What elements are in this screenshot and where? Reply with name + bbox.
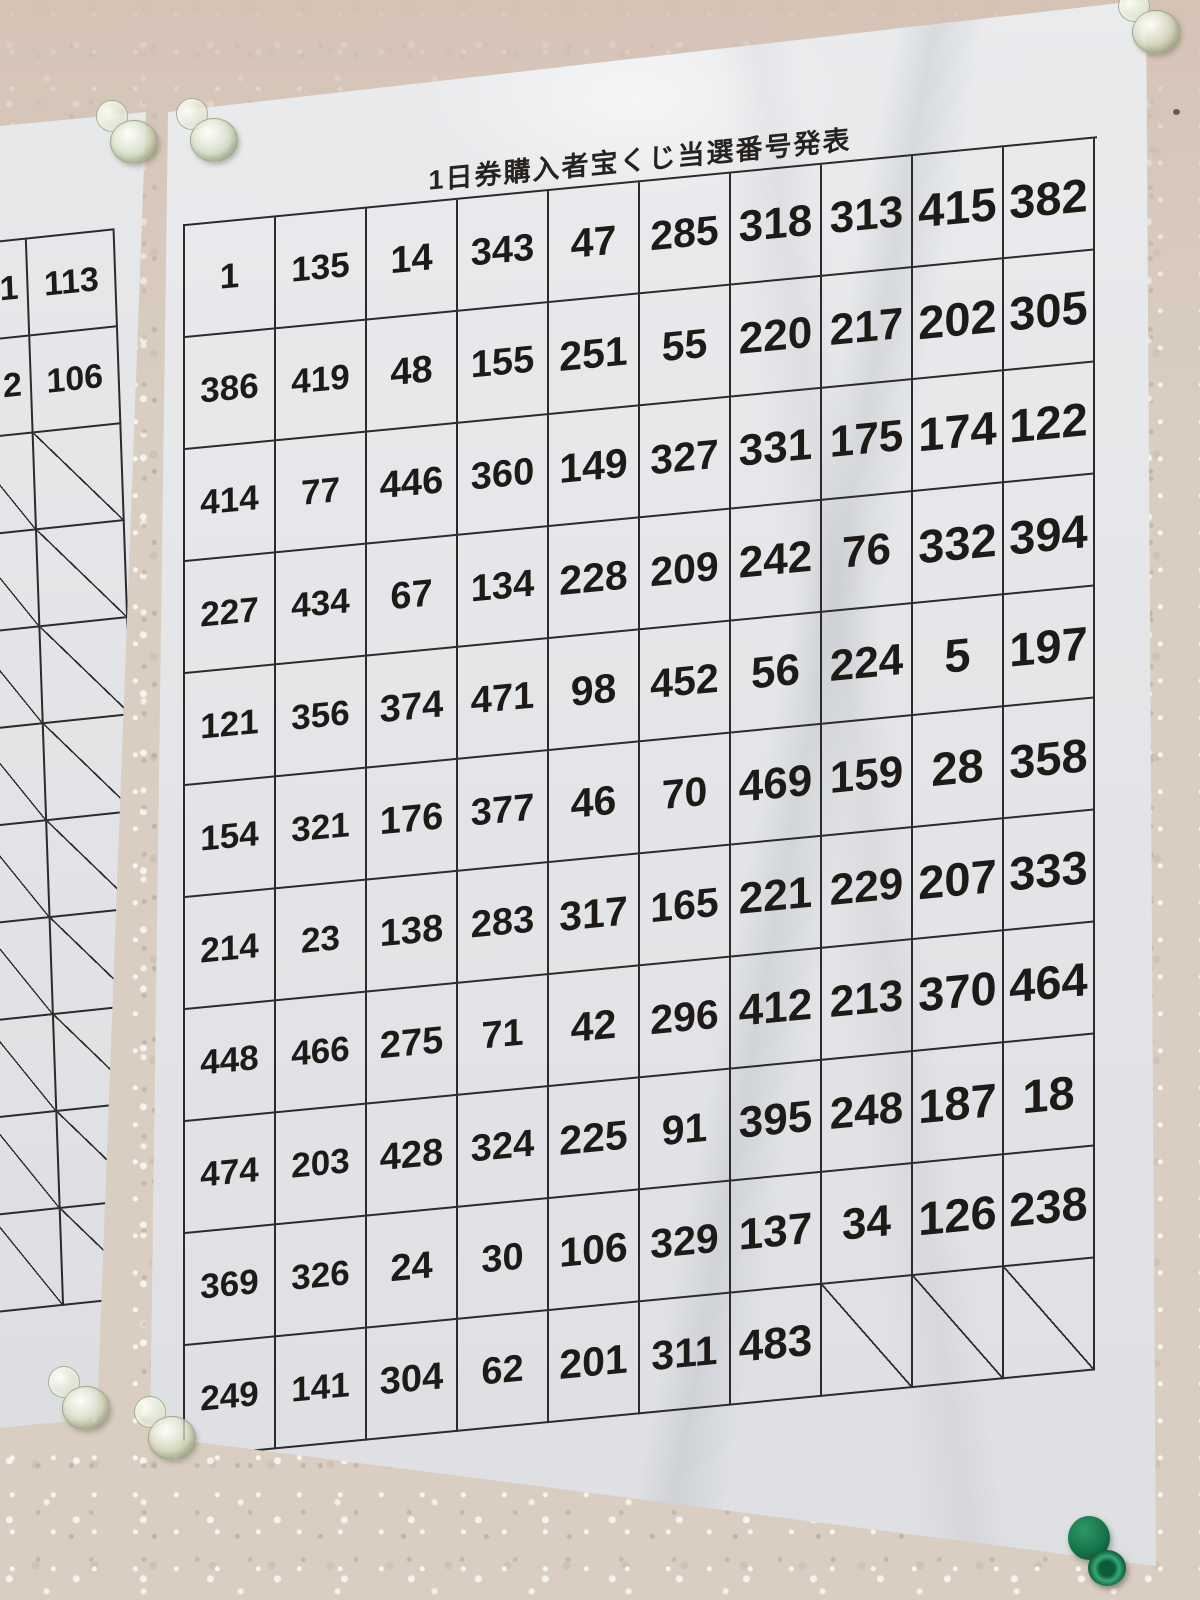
winning-number-cell: 333 xyxy=(1004,810,1095,931)
winning-number-cell: 415 xyxy=(913,147,1004,268)
crossed-out-cell xyxy=(822,1276,913,1397)
pushpin-head xyxy=(62,1386,110,1430)
winning-number-cell: 305 xyxy=(1004,250,1095,371)
winning-number-cell: 321 xyxy=(276,769,367,890)
winning-number-cell: 452 xyxy=(640,621,731,742)
lottery-number-table: 1135143434728531831341538238641948155251… xyxy=(183,136,1097,1458)
winning-number-cell: 370 xyxy=(913,931,1004,1052)
winning-number-cell: 394 xyxy=(1004,474,1095,595)
winning-number-cell: 1 xyxy=(0,239,30,343)
winning-number-cell: 98 xyxy=(549,630,640,751)
winning-number-cell: 14 xyxy=(367,200,458,321)
table-row xyxy=(0,521,128,634)
winning-number-cell: 1 xyxy=(185,217,276,338)
winning-number-cell: 202 xyxy=(913,259,1004,380)
winning-number-cell: 318 xyxy=(731,165,822,286)
winning-number-cell: 30 xyxy=(458,1199,549,1320)
winning-number-cell: 343 xyxy=(458,191,549,312)
winning-number-cell: 113 xyxy=(27,230,118,336)
winning-number-cell: 317 xyxy=(549,854,640,975)
winning-number-cell: 24 xyxy=(367,1208,458,1329)
table-row: 1113 xyxy=(0,230,118,343)
winning-number-cell: 122 xyxy=(1004,362,1095,483)
winning-number-cell: 285 xyxy=(640,173,731,294)
winning-number-cell: 228 xyxy=(549,518,640,639)
winning-number-cell: 77 xyxy=(276,433,367,554)
crossed-out-cell xyxy=(0,724,47,828)
crossed-out-cell xyxy=(1004,1258,1095,1379)
table-row xyxy=(0,424,125,537)
winning-number-cell: 474 xyxy=(185,1113,276,1234)
crossed-out-cell xyxy=(0,918,54,1022)
winning-number-cell: 220 xyxy=(731,277,822,398)
winning-number-cell: 229 xyxy=(822,828,913,949)
crossed-out-cell xyxy=(0,1112,61,1216)
table-row: 2106 xyxy=(0,327,121,440)
winning-number-cell: 377 xyxy=(458,751,549,872)
winning-number-cell: 18 xyxy=(1004,1034,1095,1155)
left-poster-content: 11132106 xyxy=(0,227,124,245)
winning-number-cell: 5 xyxy=(913,595,1004,716)
winning-number-cell: 412 xyxy=(731,949,822,1070)
winning-number-cell: 154 xyxy=(185,777,276,898)
winning-number-cell: 106 xyxy=(30,327,121,433)
crossed-out-cell xyxy=(37,521,128,627)
winning-number-cell: 369 xyxy=(185,1225,276,1346)
winning-number-cell: 466 xyxy=(276,993,367,1114)
crossed-out-cell xyxy=(0,1015,57,1119)
winning-number-cell: 62 xyxy=(458,1311,549,1432)
winning-number-cell: 331 xyxy=(731,389,822,510)
main-poster-paper: 1日券購入者宝くじ当選番号発表 113514343472853183134153… xyxy=(148,0,1162,1600)
winning-number-cell: 106 xyxy=(549,1190,640,1311)
crossed-out-cell xyxy=(913,1267,1004,1388)
crossed-out-cell xyxy=(0,627,44,731)
winning-number-cell: 175 xyxy=(822,380,913,501)
crossed-out-cell xyxy=(0,433,37,537)
winning-number-cell: 275 xyxy=(367,984,458,1105)
winning-number-cell: 313 xyxy=(822,156,913,277)
crossed-out-cell xyxy=(40,618,131,724)
winning-number-cell: 76 xyxy=(822,492,913,613)
crossed-out-cell xyxy=(0,1209,64,1313)
crossed-out-cell xyxy=(0,530,40,634)
winning-number-cell: 135 xyxy=(276,209,367,330)
winning-number-cell: 174 xyxy=(913,371,1004,492)
winning-number-cell: 2 xyxy=(0,336,34,440)
winning-number-cell: 121 xyxy=(185,665,276,786)
winning-number-cell: 324 xyxy=(458,1087,549,1208)
winning-number-cell: 207 xyxy=(913,819,1004,940)
winning-number-cell: 55 xyxy=(640,285,731,406)
crossed-out-cell xyxy=(34,424,125,530)
winning-number-cell: 209 xyxy=(640,509,731,630)
pushpin-head xyxy=(1088,1550,1126,1586)
winning-number-cell: 332 xyxy=(913,483,1004,604)
winning-number-cell: 249 xyxy=(185,1337,276,1458)
winning-number-cell: 464 xyxy=(1004,922,1095,1043)
winning-number-cell: 311 xyxy=(640,1293,731,1414)
crossed-out-cell xyxy=(0,821,51,925)
winning-number-cell: 134 xyxy=(458,527,549,648)
winning-number-cell: 227 xyxy=(185,553,276,674)
winning-number-cell: 67 xyxy=(367,536,458,657)
winning-number-cell: 304 xyxy=(367,1320,458,1441)
winning-number-cell: 165 xyxy=(640,845,731,966)
winning-number-cell: 203 xyxy=(276,1105,367,1226)
winning-number-cell: 248 xyxy=(822,1052,913,1173)
table-row xyxy=(0,618,132,731)
clear-pushpin xyxy=(172,96,238,162)
clear-pushpin xyxy=(92,98,158,164)
winning-number-cell: 360 xyxy=(458,415,549,536)
winning-number-cell: 137 xyxy=(731,1173,822,1294)
winning-number-cell: 213 xyxy=(822,940,913,1061)
winning-number-cell: 434 xyxy=(276,545,367,666)
winning-number-cell: 141 xyxy=(276,1329,367,1450)
winning-number-cell: 386 xyxy=(185,329,276,450)
winning-number-cell: 419 xyxy=(276,321,367,442)
winning-number-cell: 221 xyxy=(731,837,822,958)
winning-number-cell: 446 xyxy=(367,424,458,545)
winning-number-cell: 155 xyxy=(458,303,549,424)
winning-number-cell: 48 xyxy=(367,312,458,433)
winning-number-cell: 201 xyxy=(549,1302,640,1423)
winning-number-cell: 71 xyxy=(458,975,549,1096)
winning-number-cell: 251 xyxy=(549,294,640,415)
winning-number-cell: 56 xyxy=(731,613,822,734)
winning-number-cell: 176 xyxy=(367,760,458,881)
winning-number-cell: 28 xyxy=(913,707,1004,828)
winning-number-cell: 283 xyxy=(458,863,549,984)
winning-number-cell: 187 xyxy=(913,1043,1004,1164)
winning-number-cell: 329 xyxy=(640,1181,731,1302)
winning-number-cell: 242 xyxy=(731,501,822,622)
winning-number-cell: 225 xyxy=(549,1078,640,1199)
winning-number-cell: 91 xyxy=(640,1069,731,1190)
winning-number-cell: 296 xyxy=(640,957,731,1078)
photo-of-lottery-posters-on-wall: { "poster": { "title": "1日券購入者宝くじ当選番号発表"… xyxy=(0,0,1200,1600)
pushpin-head xyxy=(1132,10,1180,54)
winning-number-cell: 47 xyxy=(549,182,640,303)
winning-number-cell: 126 xyxy=(913,1155,1004,1276)
winning-number-cell: 197 xyxy=(1004,586,1095,707)
winning-number-cell: 70 xyxy=(640,733,731,854)
clear-pushpin xyxy=(44,1364,110,1430)
winning-number-cell: 149 xyxy=(549,406,640,527)
winning-number-cell: 358 xyxy=(1004,698,1095,819)
winning-number-cell: 224 xyxy=(822,604,913,725)
winning-number-cell: 471 xyxy=(458,639,549,760)
winning-number-cell: 382 xyxy=(1004,138,1095,259)
wall-speck xyxy=(1173,109,1180,115)
pushpin-head xyxy=(190,118,238,162)
winning-number-cell: 395 xyxy=(731,1061,822,1182)
winning-number-cell: 23 xyxy=(276,881,367,1002)
winning-number-cell: 326 xyxy=(276,1217,367,1338)
table-row xyxy=(0,715,135,828)
winning-number-cell: 34 xyxy=(822,1164,913,1285)
winning-number-cell: 428 xyxy=(367,1096,458,1217)
winning-number-cell: 138 xyxy=(367,872,458,993)
winning-number-cell: 356 xyxy=(276,657,367,778)
clear-pushpin xyxy=(130,1394,196,1460)
clear-pushpin xyxy=(1114,0,1180,54)
green-pushpin xyxy=(1062,1512,1128,1578)
winning-number-cell: 159 xyxy=(822,716,913,837)
winning-number-cell: 414 xyxy=(185,441,276,562)
winning-number-cell: 469 xyxy=(731,725,822,846)
pushpin-head xyxy=(110,120,158,164)
winning-number-cell: 448 xyxy=(185,1001,276,1122)
winning-number-cell: 374 xyxy=(367,648,458,769)
winning-number-cell: 483 xyxy=(731,1285,822,1406)
winning-number-cell: 214 xyxy=(185,889,276,1010)
winning-number-cell: 42 xyxy=(549,966,640,1087)
winning-number-cell: 217 xyxy=(822,268,913,389)
pushpin-head xyxy=(148,1416,196,1460)
winning-number-cell: 238 xyxy=(1004,1146,1095,1267)
winning-number-cell: 327 xyxy=(640,397,731,518)
winning-number-cell: 46 xyxy=(549,742,640,863)
